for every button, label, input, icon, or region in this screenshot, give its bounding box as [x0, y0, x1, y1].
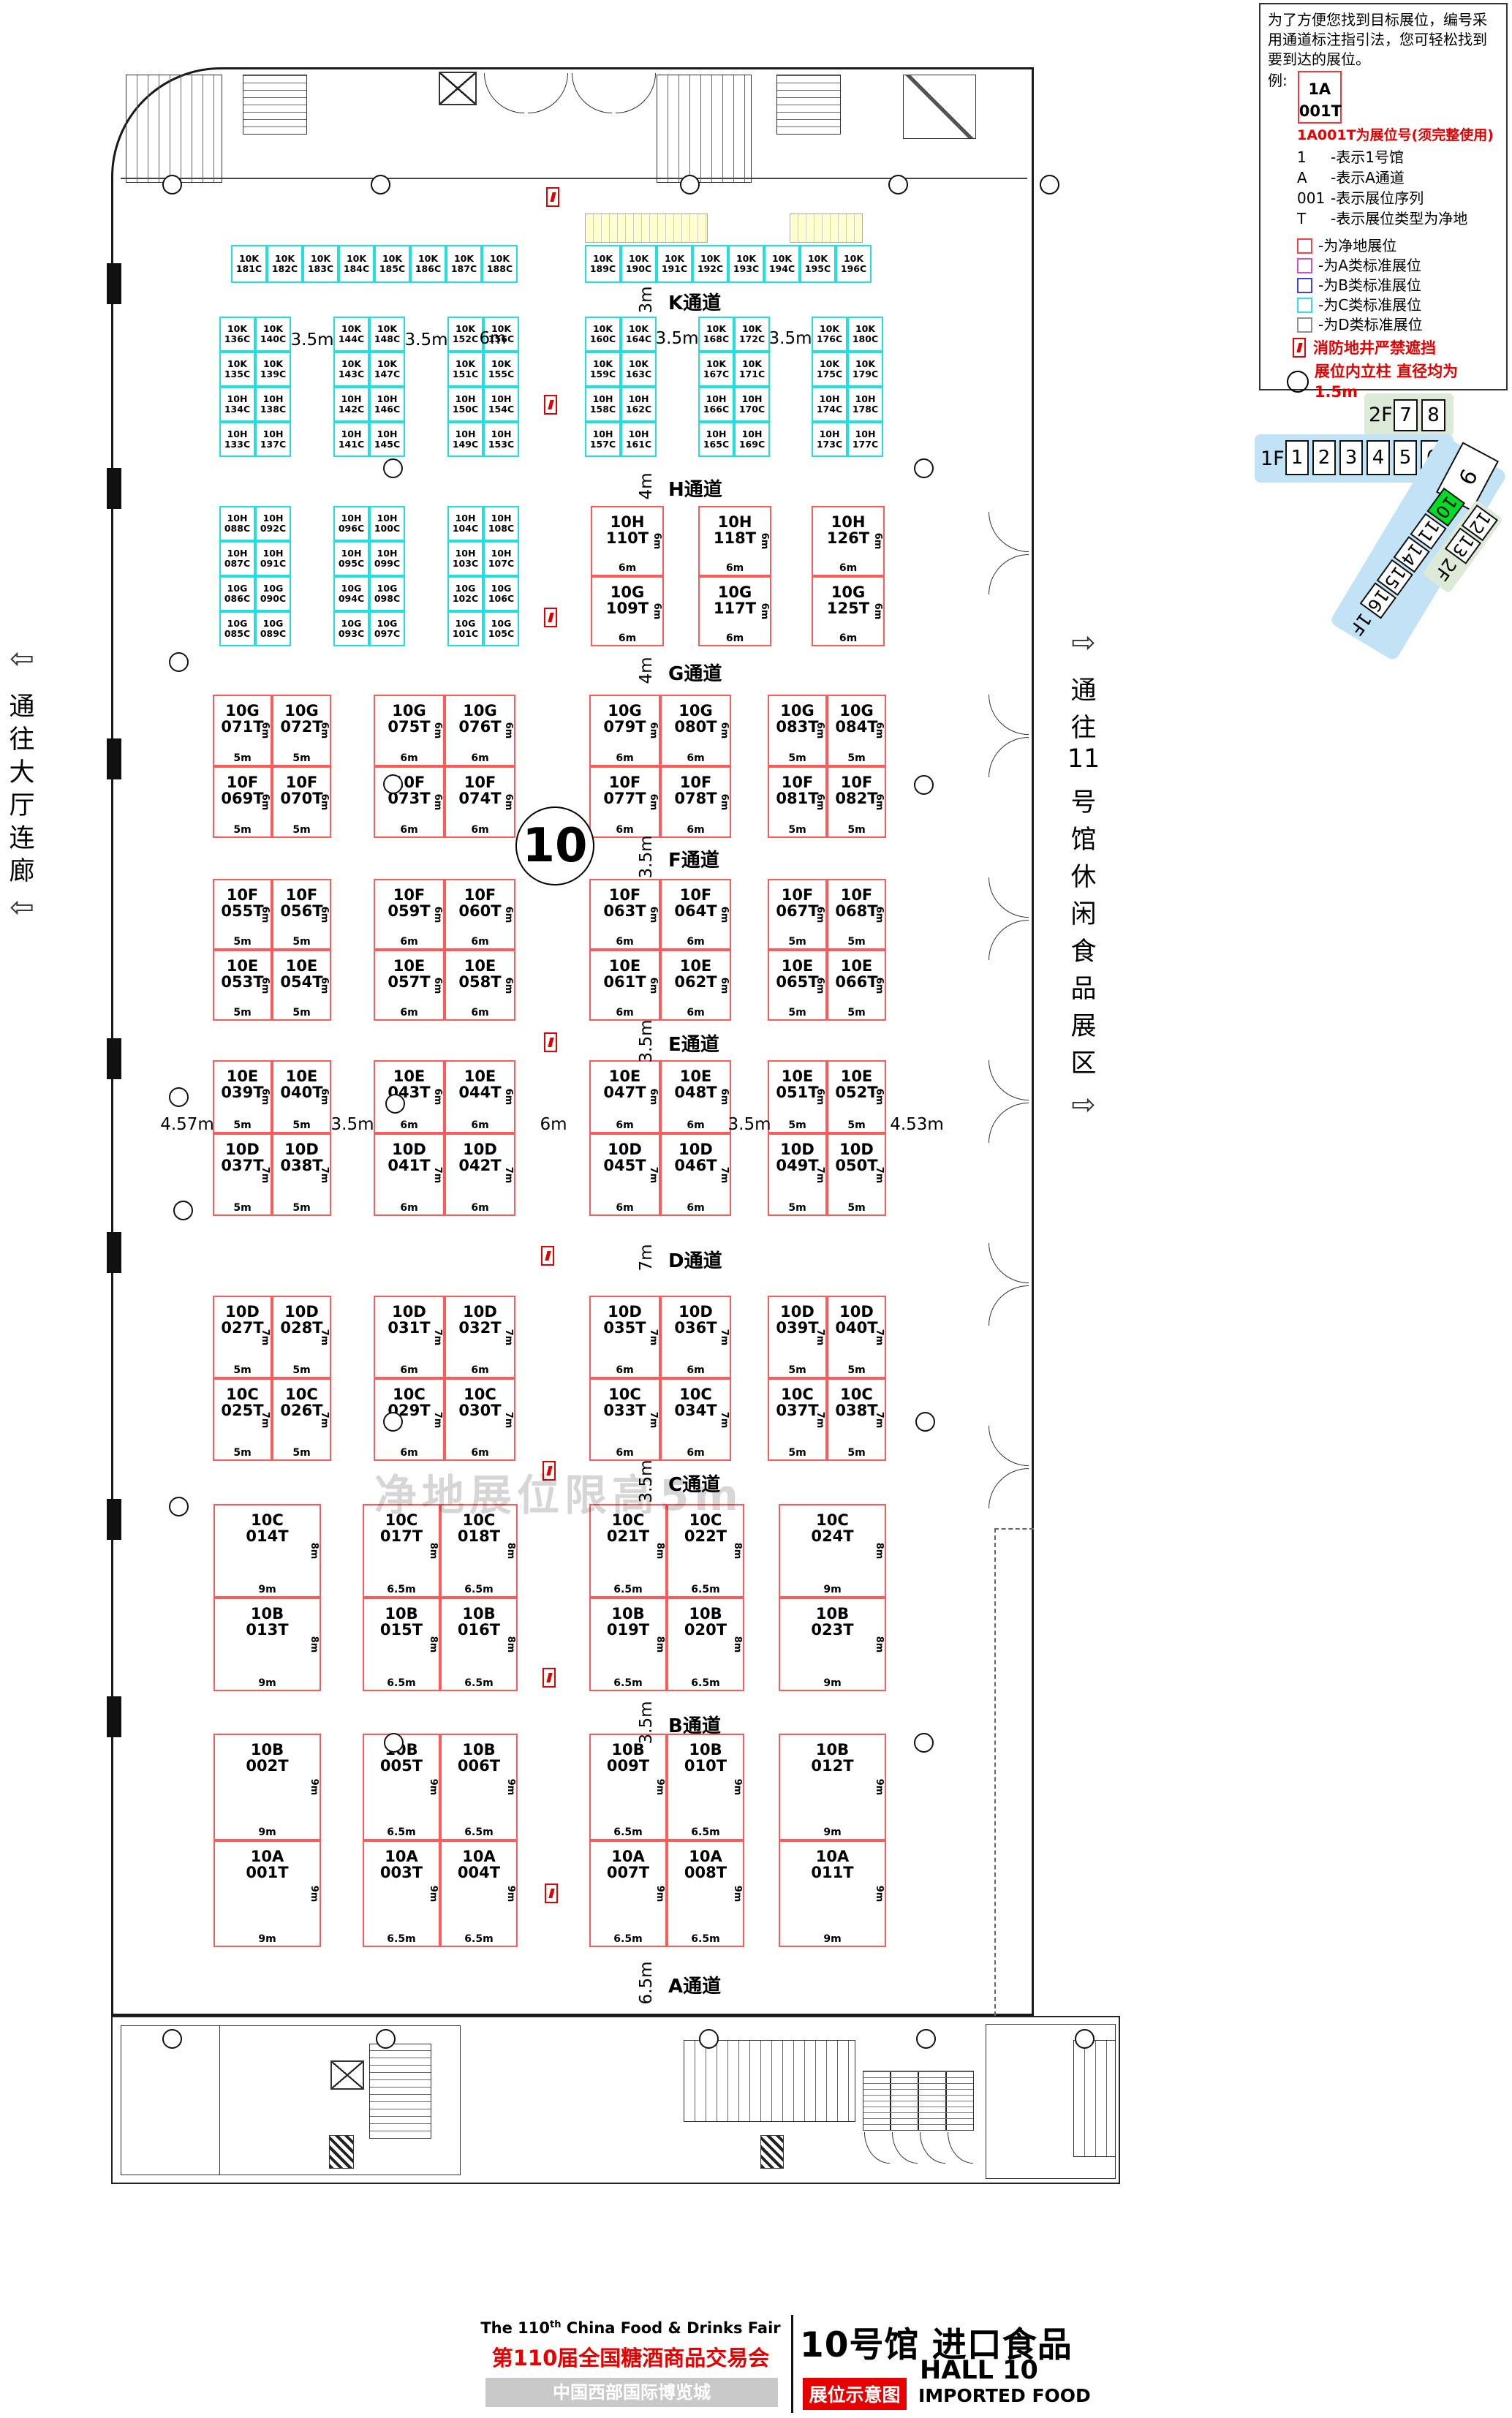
booth-10H-165C: 10H165C — [698, 422, 734, 457]
booth-10H-166C: 10H166C — [698, 387, 734, 422]
sample-booth-line1: 1A — [1299, 78, 1340, 100]
pillar-icon — [1287, 371, 1309, 393]
booth-10E-053T: 10E053T6m5m — [213, 950, 272, 1021]
booth-10G-105C: 10G105C — [483, 611, 519, 646]
type-swatch-icon — [1297, 317, 1312, 333]
booth-10H-087C: 10H087C — [219, 541, 255, 576]
booth-10K-190C: 10K190C — [621, 245, 657, 283]
left-corridor-label: 大 — [4, 752, 39, 789]
toilet-block — [657, 75, 752, 183]
booth-10K-172C: 10K172C — [734, 317, 770, 352]
right-arrow-icon: ⇨ — [1066, 1088, 1101, 1122]
pillar-icon — [385, 1094, 405, 1114]
booth-10K-185C: 10K185C — [374, 245, 410, 283]
minimap-hall-8: 8 — [1421, 399, 1445, 431]
left-arrow-icon: ⇦ — [4, 891, 39, 924]
dim-label: 4.53m — [890, 1115, 944, 1134]
booth-10A-007T: 10A007T9m6.5m — [589, 1840, 667, 1947]
sample-booth-line2: 001T — [1299, 100, 1340, 122]
booth-10F-081T: 10F081T6m5m — [768, 766, 827, 838]
booth-10C-033T: 10C033T7m6m — [589, 1378, 660, 1461]
booth-10B-005T: 10B005T9m6.5m — [363, 1734, 440, 1840]
booth-10B-016T: 10B016T8m6.5m — [440, 1598, 518, 1691]
pillar-icon — [383, 1412, 403, 1432]
booth-10H-107C: 10H107C — [483, 541, 519, 576]
booth-10G-075T: 10G075T6m6m — [374, 695, 445, 766]
booth-10H-133C: 10H133C — [219, 422, 255, 457]
pillar-icon — [162, 175, 182, 194]
shaft-hatch — [760, 2135, 784, 2169]
booth-10K-179C: 10K179C — [847, 352, 883, 387]
minimap-2f-label: 2F — [1369, 404, 1393, 426]
fair-title-cn: 第110届全国糖酒商品交易会 — [475, 2341, 786, 2372]
decode-key: 001 — [1297, 188, 1331, 208]
legend-note: 1A001T为展位号(须完整使用) — [1297, 126, 1500, 146]
booth-10K-151C: 10K151C — [447, 352, 483, 387]
booth-10K-159C: 10K159C — [585, 352, 621, 387]
booth-10C-026T: 10C026T7m5m — [272, 1378, 331, 1461]
booth-10D-035T: 10D035T7m6m — [589, 1296, 660, 1378]
fire-well-icon — [544, 1032, 557, 1052]
booth-10K-140C: 10K140C — [255, 317, 291, 352]
hall-subtitle-en: IMPORTED FOOD — [918, 2385, 1091, 2406]
booth-10B-015T: 10B015T8m6.5m — [363, 1598, 440, 1691]
booth-10G-071T: 10G071T6m5m — [213, 695, 272, 766]
booth-10F-060T: 10F060T6m6m — [445, 879, 515, 950]
booth-10D-042T: 10D042T7m6m — [445, 1133, 515, 1216]
legend-type-row: -为净地展位 — [1297, 236, 1500, 256]
decode-key: 1 — [1297, 147, 1331, 167]
booth-10K-160C: 10K160C — [585, 317, 621, 352]
booth-10D-032T: 10D032T7m6m — [445, 1296, 515, 1378]
booth-10G-085C: 10G085C — [219, 611, 255, 646]
booth-10D-050T: 10D050T7m5m — [827, 1133, 886, 1216]
booth-10H-100C: 10H100C — [369, 506, 405, 541]
booth-10H-126T: 10H126T6m6m — [812, 506, 885, 576]
fair-title-en-sup: th — [550, 2319, 561, 2330]
booth-10H-088C: 10H088C — [219, 506, 255, 541]
booth-10B-010T: 10B010T9m6.5m — [667, 1734, 744, 1840]
wall-door-niche — [107, 1499, 121, 1540]
booth-10H-145C: 10H145C — [369, 422, 405, 457]
booth-10H-150C: 10H150C — [447, 387, 483, 422]
booth-10E-061T: 10E061T6m6m — [589, 950, 660, 1021]
booth-10K-193C: 10K193C — [728, 245, 764, 283]
booth-10K-181C: 10K181C — [231, 245, 267, 283]
booth-10K-187C: 10K187C — [446, 245, 482, 283]
booth-10F-070T: 10F070T6m5m — [272, 766, 331, 838]
fair-title-en: The 110th China Food & Drinks Fair — [479, 2319, 782, 2337]
booth-10K-175C: 10K175C — [812, 352, 847, 387]
booth-10H-099C: 10H099C — [369, 541, 405, 576]
legend-decode-1: 1-表示1号馆 — [1297, 147, 1500, 167]
booth-10G-102C: 10G102C — [447, 576, 483, 611]
shaft-hatch — [329, 2135, 354, 2169]
wall-door-niche — [107, 1696, 121, 1737]
minimap-hall-2: 2 — [1312, 440, 1336, 475]
hall-number-circle: 10 — [515, 806, 594, 885]
dim-label: 6m — [479, 329, 506, 348]
right-corridor-label: 闲 — [1066, 893, 1101, 931]
pillar-icon — [371, 175, 390, 194]
booth-10F-055T: 10F055T6m5m — [213, 879, 272, 950]
decode-desc: -表示1号馆 — [1331, 148, 1404, 166]
booth-10C-014T: 10C014T8m9m — [213, 1504, 321, 1598]
booth-10C-024T: 10C024T8m9m — [779, 1504, 886, 1598]
booth-10K-168C: 10K168C — [698, 317, 734, 352]
type-label: -为A类标准展位 — [1318, 256, 1421, 276]
booth-10F-068T: 10F068T6m5m — [827, 879, 886, 950]
left-arrow-icon: ⇦ — [4, 642, 39, 676]
booth-10G-097C: 10G097C — [369, 611, 405, 646]
right-corridor-label: 馆 — [1066, 819, 1101, 856]
minimap-hall-3: 3 — [1339, 440, 1363, 475]
dashed-boundary-h — [994, 1528, 1034, 1530]
booth-10C-030T: 10C030T7m6m — [445, 1378, 515, 1461]
aisle-label-A: A通道 — [668, 1971, 721, 1998]
booth-10B-009T: 10B009T9m6.5m — [589, 1734, 667, 1840]
fair-title-en-pre: The 110 — [480, 2319, 550, 2337]
booth-10C-025T: 10C025T7m5m — [213, 1378, 272, 1461]
booth-10H-154C: 10H154C — [483, 387, 519, 422]
booth-10F-059T: 10F059T6m6m — [374, 879, 445, 950]
booth-10D-031T: 10D031T7m6m — [374, 1296, 445, 1378]
legend-type-row: -为C类标准展位 — [1297, 295, 1500, 315]
booth-10G-098C: 10G098C — [369, 576, 405, 611]
aisle-dim-A: 6.5m — [637, 1962, 656, 2005]
booth-10E-057T: 10E057T6m6m — [374, 950, 445, 1021]
pillar-icon — [1075, 2029, 1095, 2049]
dim-label: 3.5m — [728, 1115, 771, 1134]
aisle-dim-K: 3m — [637, 286, 656, 313]
booth-10K-167C: 10K167C — [698, 352, 734, 387]
right-corridor-label: 品 — [1066, 968, 1101, 1005]
booth-10F-082T: 10F082T6m5m — [827, 766, 886, 838]
right-corridor-label: 11 — [1066, 744, 1101, 774]
booth-10K-189C: 10K189C — [585, 245, 621, 283]
pillar-icon — [914, 458, 934, 478]
booth-10H-158C: 10H158C — [585, 387, 621, 422]
type-label: -为C类标准展位 — [1318, 295, 1421, 315]
booth-10H-157C: 10H157C — [585, 422, 621, 457]
booth-10K-163C: 10K163C — [621, 352, 657, 387]
toilet-block — [126, 75, 222, 183]
aisle-dim-F: 3.5m — [637, 836, 656, 879]
booth-10D-041T: 10D041T7m6m — [374, 1133, 445, 1216]
booth-10D-049T: 10D049T7m5m — [768, 1133, 827, 1216]
wall-door-niche — [107, 1038, 121, 1079]
minimap-1f-label: 1F — [1260, 447, 1285, 470]
right-corridor-label: 食 — [1066, 931, 1101, 968]
pillar-icon — [916, 2029, 936, 2049]
minimap-hall-5: 5 — [1394, 440, 1417, 475]
pillar-icon — [914, 775, 934, 795]
dim-label: 3.5m — [331, 1115, 374, 1134]
booth-10B-012T: 10B012T9m9m — [779, 1734, 886, 1840]
booth-10G-101C: 10G101C — [447, 611, 483, 646]
title-divider — [791, 2315, 793, 2413]
minimap-hall-4: 4 — [1367, 440, 1390, 475]
booth-10H-118T: 10H118T6m6m — [698, 506, 771, 576]
wall-door-niche — [107, 1232, 121, 1273]
booth-10C-037T: 10C037T7m5m — [768, 1378, 827, 1461]
type-label: -为净地展位 — [1318, 236, 1396, 256]
booth-10A-001T: 10A001T9m9m — [213, 1840, 321, 1947]
legend-type-row: -为A类标准展位 — [1297, 256, 1500, 276]
booth-10G-106C: 10G106C — [483, 576, 519, 611]
escalator-strip — [585, 214, 708, 243]
booth-10K-183C: 10K183C — [303, 245, 339, 283]
pillar-icon — [376, 2029, 396, 2049]
booth-10F-077T: 10F077T6m6m — [589, 766, 660, 838]
right-corridor-label: 区 — [1066, 1043, 1101, 1080]
pillar-icon — [680, 175, 700, 194]
aisle-dim-B: 3.5m — [637, 1701, 656, 1745]
booth-10G-089C: 10G089C — [255, 611, 291, 646]
booth-10E-058T: 10E058T6m6m — [445, 950, 515, 1021]
legend-decode-4: T-表示展位类型为净地 — [1297, 208, 1500, 229]
pillar-icon — [173, 1201, 193, 1220]
legend-example-label: 例: — [1268, 71, 1288, 91]
pillar-icon — [383, 774, 403, 794]
booth-10E-043T: 10E043T6m6m — [374, 1060, 445, 1133]
booth-10K-164C: 10K164C — [621, 317, 657, 352]
booth-10K-176C: 10K176C — [812, 317, 847, 352]
legend-type-row: -为B类标准展位 — [1297, 276, 1500, 295]
dim-label: 3.5m — [405, 330, 448, 350]
escalator-strip — [790, 214, 863, 243]
booth-10K-180C: 10K180C — [847, 317, 883, 352]
booth-10F-074T: 10F074T6m6m — [445, 766, 515, 838]
type-swatch-icon — [1297, 278, 1312, 293]
toilet-block — [684, 2040, 855, 2122]
booth-10H-103C: 10H103C — [447, 541, 483, 576]
booth-10K-139C: 10K139C — [255, 352, 291, 387]
right-arrow-icon: ⇨ — [1066, 626, 1101, 660]
decode-key: A — [1297, 167, 1331, 188]
pillar-icon — [915, 1412, 935, 1432]
booth-10D-038T: 10D038T7m5m — [272, 1133, 331, 1216]
booth-10H-170C: 10H170C — [734, 387, 770, 422]
booth-10H-146C: 10H146C — [369, 387, 405, 422]
right-corridor-label: 展 — [1066, 1005, 1101, 1043]
legend-intro: 为了方便您找到目标展位，编号采用通道标注指引法，您可轻松找到要到达的展位。 — [1268, 10, 1500, 69]
fire-well-icon — [544, 395, 557, 415]
right-corridor-label: 通 — [1066, 670, 1101, 707]
elevator — [330, 2060, 364, 2090]
booth-10H-169C: 10H169C — [734, 422, 770, 457]
booth-10K-143C: 10K143C — [333, 352, 369, 387]
right-corridor-label: 号 — [1066, 782, 1101, 819]
booth-10G-072T: 10G072T6m5m — [272, 695, 331, 766]
fire-well-icon — [1293, 338, 1306, 358]
minimap-hall-1: 1 — [1285, 440, 1309, 475]
booth-10K-171C: 10K171C — [734, 352, 770, 387]
dim-label: 6m — [540, 1115, 567, 1134]
booth-10G-125T: 10G125T6m6m — [812, 576, 885, 646]
stair-block — [243, 75, 307, 135]
booth-10B-019T: 10B019T8m6.5m — [589, 1598, 667, 1691]
legend-type-row: -为D类标准展位 — [1297, 315, 1500, 335]
left-corridor-label: 廊 — [4, 850, 39, 888]
booth-10G-090C: 10G090C — [255, 576, 291, 611]
booth-10K-155C: 10K155C — [483, 352, 519, 387]
booth-10H-174C: 10H174C — [812, 387, 847, 422]
booth-10F-067T: 10F067T6m5m — [768, 879, 827, 950]
booth-10E-066T: 10E066T6m5m — [827, 950, 886, 1021]
aisle-label-B: B通道 — [668, 1711, 721, 1738]
booth-10D-036T: 10D036T7m6m — [660, 1296, 731, 1378]
booth-10K-194C: 10K194C — [764, 245, 800, 283]
stair-block — [776, 75, 841, 135]
fire-well-icon — [545, 1884, 558, 1903]
pillar-icon — [169, 1497, 189, 1516]
booth-10H-137C: 10H137C — [255, 422, 291, 457]
aisle-label-K: K通道 — [668, 288, 721, 315]
aisle-label-F: F通道 — [668, 845, 719, 872]
fire-note-text: 消防地井严禁遮挡 — [1313, 338, 1436, 358]
booth-10F-064T: 10F064T6m6m — [660, 879, 731, 950]
booth-10D-045T: 10D045T7m6m — [589, 1133, 660, 1216]
wall-door-niche — [107, 468, 121, 509]
booth-10K-191C: 10K191C — [657, 245, 692, 283]
booth-10K-152C: 10K152C — [447, 317, 483, 352]
fire-well-icon — [543, 1668, 556, 1688]
booth-10E-051T: 10E051T6m5m — [768, 1060, 827, 1133]
booth-10H-110T: 10H110T6m6m — [591, 506, 664, 576]
pillar-icon — [888, 175, 908, 194]
booth-10K-195C: 10K195C — [800, 245, 836, 283]
hall-title-en: HALL 10 — [920, 2356, 1038, 2385]
booth-10H-177C: 10H177C — [847, 422, 883, 457]
bottom-room-divider — [219, 2025, 220, 2175]
fire-well-icon — [541, 1246, 554, 1266]
toilet-block — [1073, 2040, 1116, 2157]
booth-10G-084T: 10G084T6m5m — [827, 695, 886, 766]
booth-10K-136C: 10K136C — [219, 317, 255, 352]
booth-10H-092C: 10H092C — [255, 506, 291, 541]
booth-10E-054T: 10E054T6m5m — [272, 950, 331, 1021]
booth-10D-027T: 10D027T7m5m — [213, 1296, 272, 1378]
fire-well-icon — [546, 187, 559, 207]
booth-10D-039T: 10D039T7m5m — [768, 1296, 827, 1378]
aisle-dim-D: 7m — [637, 1244, 656, 1271]
booth-10H-142C: 10H142C — [333, 387, 369, 422]
legend-decode-3: 001-表示展位序列 — [1297, 188, 1500, 208]
elevator — [439, 72, 477, 105]
type-label: -为B类标准展位 — [1318, 276, 1421, 295]
aisle-dim-E: 3.5m — [637, 1020, 656, 1063]
booth-10K-192C: 10K192C — [692, 245, 728, 283]
dim-label: 4.57m — [160, 1115, 214, 1134]
stair-block — [903, 75, 976, 139]
booth-10H-091C: 10H091C — [255, 541, 291, 576]
booth-10B-006T: 10B006T9m6.5m — [440, 1734, 518, 1840]
booth-10F-078T: 10F078T6m6m — [660, 766, 731, 838]
type-swatch-icon — [1297, 238, 1312, 254]
pillar-icon — [169, 1087, 189, 1107]
decode-desc: -表示展位类型为净地 — [1331, 210, 1467, 227]
booth-10K-184C: 10K184C — [339, 245, 374, 283]
dashed-boundary-v — [994, 1528, 996, 2016]
booth-10F-056T: 10F056T6m5m — [272, 879, 331, 950]
booth-10H-173C: 10H173C — [812, 422, 847, 457]
booth-10K-188C: 10K188C — [482, 245, 518, 283]
venue-bar: 中国西部国际博览城 — [485, 2378, 778, 2407]
booth-10K-135C: 10K135C — [219, 352, 255, 387]
dim-label: 3.5m — [656, 329, 699, 348]
booth-10E-044T: 10E044T6m6m — [445, 1060, 515, 1133]
booth-10E-040T: 10E040T6m5m — [272, 1060, 331, 1133]
booth-10G-080T: 10G080T6m6m — [660, 695, 731, 766]
booth-10E-048T: 10E048T6m6m — [660, 1060, 731, 1133]
aisle-label-G: G通道 — [668, 659, 722, 686]
legend-sample-booth: 1A 001T — [1298, 71, 1342, 124]
pillar-icon — [914, 1733, 934, 1753]
booth-10K-182C: 10K182C — [267, 245, 303, 283]
booth-10F-063T: 10F063T6m6m — [589, 879, 660, 950]
booth-10C-034T: 10C034T7m6m — [660, 1378, 731, 1461]
aisle-label-E: E通道 — [668, 1029, 719, 1057]
fire-well-icon — [544, 608, 557, 627]
aisle-label-D: D通道 — [668, 1246, 722, 1273]
floorplan-page: 10K181C10K182C10K183C10K184C10K185C10K18… — [0, 0, 1512, 2418]
booth-10H-161C: 10H161C — [621, 422, 657, 457]
left-corridor-label: 连 — [4, 817, 39, 855]
booth-10D-046T: 10D046T7m6m — [660, 1133, 731, 1216]
stair-block — [369, 2044, 431, 2139]
pillar-icon — [699, 2029, 719, 2049]
legend-decode-2: A-表示A通道 — [1297, 167, 1500, 188]
booth-10G-083T: 10G083T6m5m — [768, 695, 827, 766]
type-swatch-icon — [1297, 298, 1312, 313]
booth-10H-178C: 10H178C — [847, 387, 883, 422]
legend-fire-note: 消防地井严禁遮挡 — [1293, 338, 1500, 358]
booth-10G-117T: 10G117T6m6m — [698, 576, 771, 646]
booth-10E-047T: 10E047T6m6m — [589, 1060, 660, 1133]
booth-10F-069T: 10F069T6m5m — [213, 766, 272, 838]
booth-10H-104C: 10H104C — [447, 506, 483, 541]
booth-10K-148C: 10K148C — [369, 317, 405, 352]
pillar-icon — [383, 458, 403, 478]
booth-10G-079T: 10G079T6m6m — [589, 695, 660, 766]
booth-10B-020T: 10B020T8m6.5m — [667, 1598, 744, 1691]
booth-10G-094C: 10G094C — [333, 576, 369, 611]
booth-10B-002T: 10B002T9m9m — [213, 1734, 321, 1840]
aisle-dim-G: 4m — [637, 657, 656, 684]
decode-desc: -表示A通道 — [1331, 169, 1405, 186]
legend-type-list: -为净地展位-为A类标准展位-为B类标准展位-为C类标准展位-为D类标准展位 — [1297, 236, 1500, 335]
booth-10C-038T: 10C038T7m5m — [827, 1378, 886, 1461]
aisle-dim-H: 4m — [637, 472, 656, 499]
booth-10E-065T: 10E065T6m5m — [768, 950, 827, 1021]
dim-label: 3.5m — [291, 330, 334, 350]
booth-10D-037T: 10D037T7m5m — [213, 1133, 272, 1216]
booth-10K-186C: 10K186C — [410, 245, 446, 283]
booth-10H-138C: 10H138C — [255, 387, 291, 422]
booth-10K-147C: 10K147C — [369, 352, 405, 387]
booth-10G-086C: 10G086C — [219, 576, 255, 611]
decode-desc: -表示展位序列 — [1331, 189, 1424, 207]
left-corridor-label: 往 — [4, 719, 39, 756]
booth-10A-004T: 10A004T9m6.5m — [440, 1840, 518, 1947]
booth-10H-134C: 10H134C — [219, 387, 255, 422]
booth-10H-162C: 10H162C — [621, 387, 657, 422]
booth-10K-144C: 10K144C — [333, 317, 369, 352]
booth-10G-109T: 10G109T6m6m — [591, 576, 664, 646]
right-corridor-label: 往 — [1066, 707, 1101, 744]
booth-10A-011T: 10A011T9m9m — [779, 1840, 886, 1947]
